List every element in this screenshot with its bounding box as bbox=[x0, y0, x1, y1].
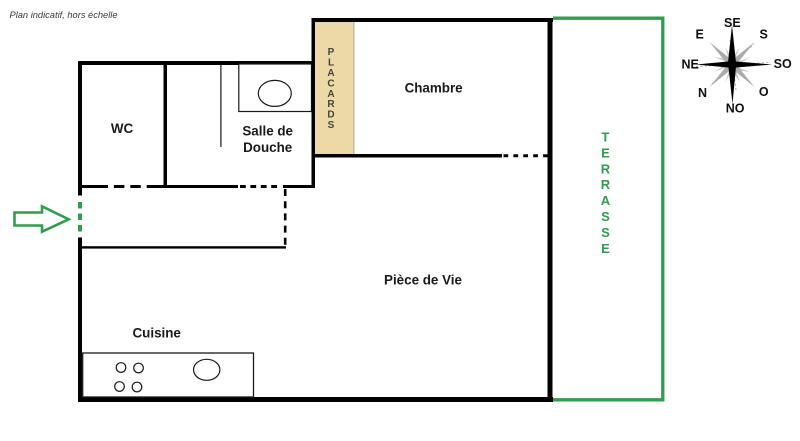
svg-text:NE: NE bbox=[682, 58, 699, 72]
svg-text:R: R bbox=[601, 177, 611, 192]
svg-text:T: T bbox=[601, 130, 609, 145]
svg-text:Plan indicatif, hors échelle: Plan indicatif, hors échelle bbox=[10, 10, 118, 20]
svg-text:S: S bbox=[601, 225, 610, 240]
svg-text:S: S bbox=[328, 120, 335, 131]
svg-text:O: O bbox=[759, 85, 769, 99]
svg-text:Chambre: Chambre bbox=[405, 80, 463, 95]
svg-text:A: A bbox=[327, 68, 334, 79]
svg-text:E: E bbox=[601, 241, 610, 256]
svg-text:A: A bbox=[327, 89, 334, 100]
svg-text:E: E bbox=[601, 145, 610, 160]
svg-text:S: S bbox=[760, 28, 768, 42]
svg-text:SO: SO bbox=[774, 57, 792, 71]
svg-text:D: D bbox=[327, 110, 334, 121]
svg-text:N: N bbox=[698, 86, 707, 100]
svg-text:Douche: Douche bbox=[243, 140, 292, 155]
svg-text:S: S bbox=[601, 209, 610, 224]
svg-text:P: P bbox=[328, 47, 335, 58]
svg-text:R: R bbox=[327, 99, 335, 110]
svg-text:L: L bbox=[328, 58, 334, 69]
svg-text:E: E bbox=[696, 28, 704, 42]
svg-text:Cuisine: Cuisine bbox=[133, 325, 181, 340]
svg-text:R: R bbox=[601, 161, 611, 176]
svg-text:WC: WC bbox=[111, 121, 134, 136]
svg-text:Salle de: Salle de bbox=[242, 123, 293, 138]
svg-text:SE: SE bbox=[724, 16, 741, 30]
svg-text:C: C bbox=[327, 78, 334, 89]
svg-text:Pièce de Vie: Pièce de Vie bbox=[384, 273, 462, 288]
svg-text:A: A bbox=[601, 193, 611, 208]
svg-text:NO: NO bbox=[726, 101, 745, 115]
